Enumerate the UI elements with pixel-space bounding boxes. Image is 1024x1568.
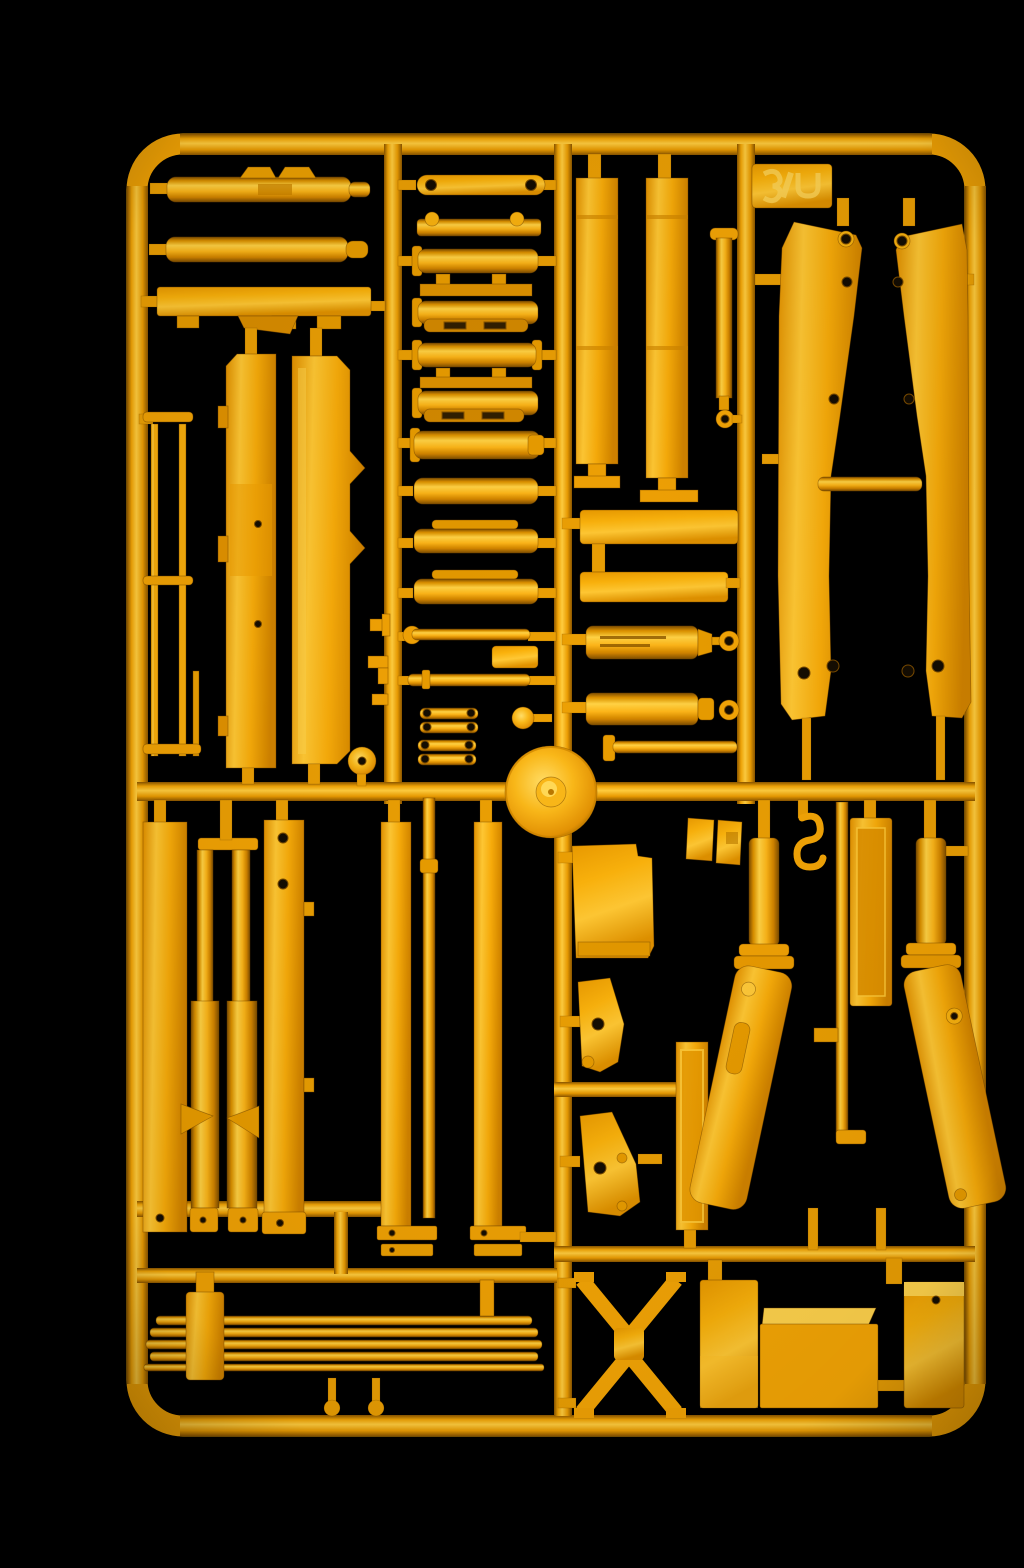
sprue-photo: Photograph of a yellow injection-moulded… <box>40 16 1024 1552</box>
vignette-overlay <box>40 16 1024 1552</box>
sprue-svg: Photograph of a yellow injection-moulded… <box>40 16 1024 1552</box>
